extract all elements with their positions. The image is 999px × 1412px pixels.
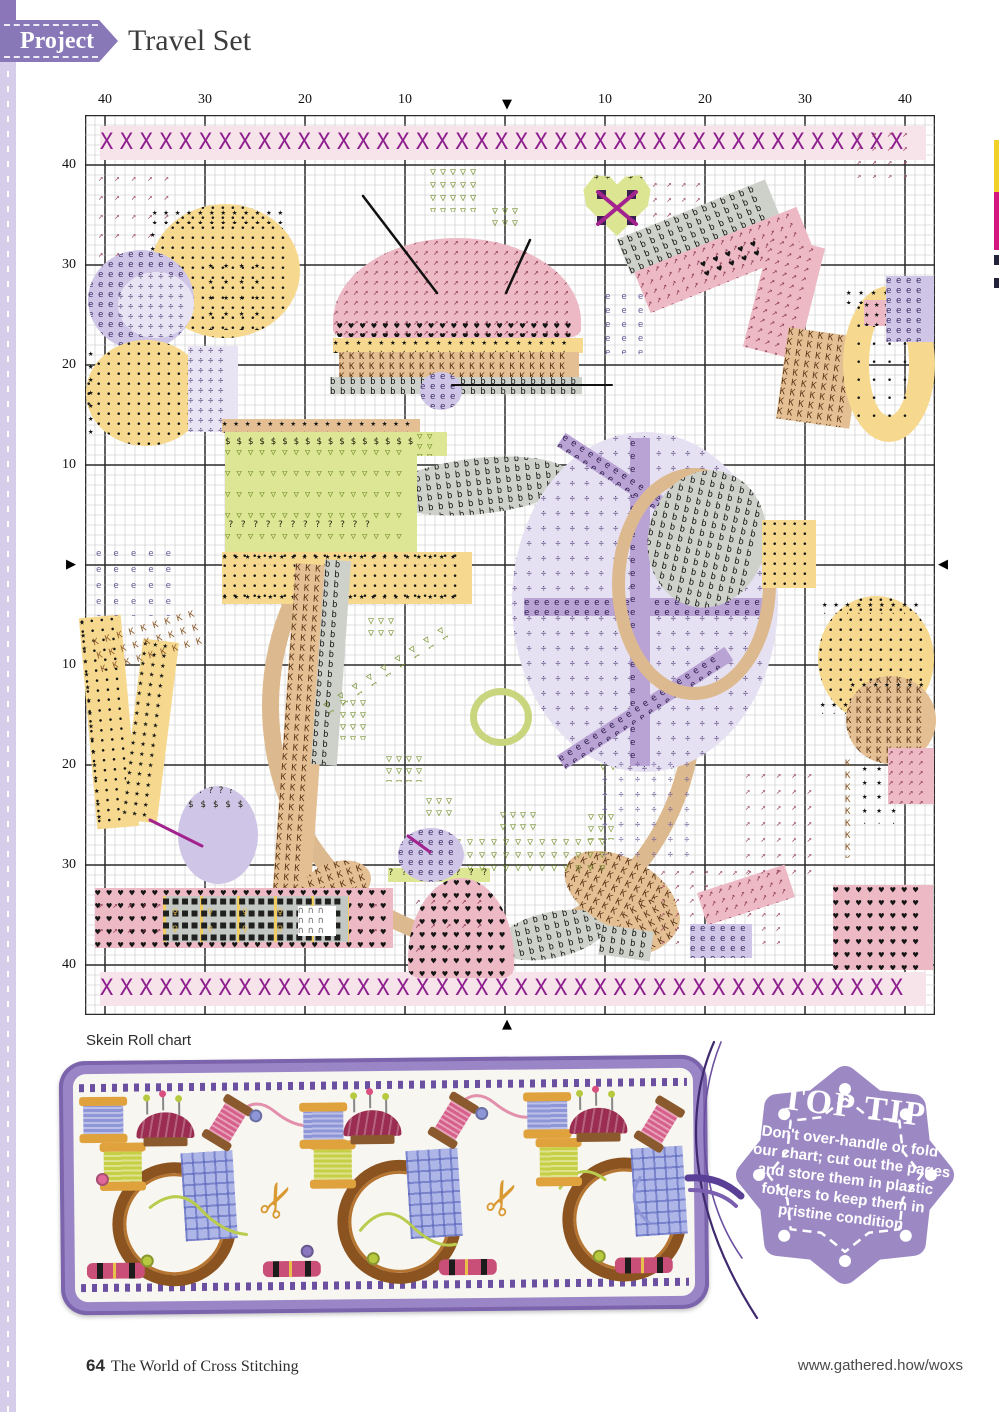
pin-head: [350, 1092, 357, 1099]
aida-fabric: ✂✂: [73, 1068, 695, 1302]
footer-left: 64The World of Cross Stitching: [86, 1356, 299, 1376]
thread-squiggles: [73, 1068, 695, 1302]
stitch-blob: [627, 216, 636, 225]
pincushion-base: [576, 1133, 620, 1142]
stitch-blob: ????????????????????????????????: [228, 520, 378, 532]
left-axis-number: 10: [44, 657, 76, 673]
pin-motif: [353, 1098, 355, 1112]
spool-thread: [104, 1152, 142, 1182]
button-motif: [141, 1254, 154, 1267]
left-axis-number: 40: [44, 157, 76, 173]
top-axis-number: 30: [794, 92, 816, 108]
stitch-blob: ★★★★★★★★★★★★★★★★★★★★★★★★: [88, 348, 104, 440]
pin-motif: [385, 1099, 387, 1113]
left-axis-number: 40: [44, 957, 76, 973]
stitch-blob: eeeeeeeeeeeeeeeeeeeeeeeeeeee: [420, 372, 462, 410]
spool-thread: [303, 1111, 343, 1139]
stitch-blob: ★★★★★★★★★★★★★★★★★★★★★★★★★★★★: [822, 600, 930, 614]
stitch-blob: ∩∩∩∩∩∩∩∩∩∩∩∩∩∩∩∩∩∩∩∩: [298, 906, 336, 936]
stitch-blob: ★★★★★★★★★★★★★★★★★★★★★★★★★★★★★★★★★★★★★★★★…: [222, 419, 420, 433]
stitch-blob: ★★★★★★★★★★★★★★★★★★★★★★★★★★★★★★★★★★★★★★★★…: [333, 338, 583, 353]
stitch-blob: ▽▽▽▽▽▽▽▽▽▽▽▽▽▽▽▽▽: [417, 432, 447, 456]
spool-thread: [540, 1147, 578, 1177]
pin-head: [592, 1086, 599, 1093]
spool-cap: [536, 1138, 582, 1147]
floss-skein-motif: [439, 1259, 497, 1276]
skein-roll-photo: ✂✂: [59, 1055, 710, 1316]
button-motif: [593, 1250, 606, 1263]
stitch-blob: ♥♥♥♥♥♥♥♥♥♥♥♥♥♥♥♥♥♥♥♥♥♥♥♥♥♥♥♥♥♥♥♥♥♥♥♥♥♥♥♥…: [337, 322, 579, 337]
stitch-blob: [597, 216, 606, 225]
floss-skein-motif: [615, 1257, 673, 1274]
stitch-blob: ••••••••••••••••••••••••••••••••••••••••…: [762, 520, 816, 588]
left-axis-number: 20: [44, 357, 76, 373]
stitch-blob: $$$$$$$$$$$$$$$$$$$$$$$$$$$$: [188, 800, 246, 838]
magazine-page: Project Travel Set Skein Roll chart ✂✂ T…: [0, 0, 999, 1412]
spool-cap: [100, 1142, 146, 1151]
center-marker: ▶: [66, 558, 76, 571]
page-number: 64: [86, 1356, 105, 1375]
stitch-blob: XXXXXXXXXXXXXXXXXXXXXXXXXXXXXXXXXXXXXXXX…: [100, 972, 926, 1006]
stitch-blob: KKKKKKKKKKKKKKKKKKKKKKKKKKKKKKKKKKKKKKKK…: [339, 352, 579, 378]
print-registration-mark: [994, 255, 999, 265]
pin-head: [576, 1090, 583, 1097]
pin-head: [608, 1091, 615, 1098]
magazine-name: The World of Cross Stitching: [111, 1358, 299, 1375]
stitch-blob: ▽▽▽▽▽▽▽▽▽▽▽▽▽▽▽▽▽▽▽▽▽▽▽▽▽▽▽▽▽▽▽▽: [430, 166, 484, 212]
stitch-blob: ↗↗↗↗↗↗↗↗↗↗↗↗↗↗↗↗↗↗↗↗↗↗↗↗↗↗↗↗↗↗↗↗↗↗↗↗↗↗: [888, 748, 934, 804]
stitch-blob: eeeeeeeeeeeeeeeeeeeeeeeeeeee: [605, 290, 663, 354]
stitch-blob: [470, 688, 532, 746]
spool-cap: [79, 1097, 127, 1107]
center-marker: ▲: [502, 1018, 512, 1031]
pin-head: [366, 1088, 373, 1095]
project-ribbon: Project: [0, 20, 118, 62]
pin-motif: [162, 1096, 164, 1110]
gold-spool-motif: [310, 1140, 357, 1188]
top-axis-number: 20: [294, 92, 316, 108]
pin-head: [143, 1094, 150, 1101]
gold-spool-motif: [536, 1138, 583, 1186]
top-axis-number: 30: [194, 92, 216, 108]
left-axis-number: 30: [44, 257, 76, 273]
photo-caption: Skein Roll chart: [86, 1032, 191, 1049]
button-motif: [367, 1252, 380, 1265]
spool-thread: [314, 1149, 352, 1179]
stitch-blob: ↗↗↗↗↗↗↗↗↗↗↗↗↗↗↗↗↗↗↗↗↗↗↗↗↗↗↗↗↗↗↗↗: [415, 890, 507, 970]
stitch-blob: ★★★★★★★★★★★★★★★★★★★★★★★★★★★★: [208, 258, 270, 330]
pin-head: [382, 1093, 389, 1100]
stitch-blob: eeeeeeeeeeeeeeeeeeeeeeeeeeeeeeeeeeee: [690, 924, 752, 958]
stitch-blob: ▽▽▽▽▽▽▽▽▽▽▽▽▽▽▽▽▽▽▽▽: [426, 796, 462, 822]
top-axis-number: 10: [394, 92, 416, 108]
floss-skein-motif: [87, 1263, 145, 1280]
spool-thread: [527, 1101, 567, 1129]
floss-skein-motif: [263, 1261, 321, 1278]
spool-cap: [536, 1177, 582, 1186]
pin-motif: [595, 1092, 597, 1106]
ribbon-label: Project: [20, 28, 94, 55]
pincushion-base: [350, 1135, 394, 1144]
stitch-blob: ↗↗↗↗↗↗↗↗↗↗↗↗↗↗↗↗↗↗↗↗↗↗↗↗↗↗↗↗: [856, 128, 928, 178]
print-registration-mark: [994, 278, 999, 288]
pin-motif: [146, 1100, 148, 1114]
print-registration-mark: [994, 192, 999, 250]
stitch-blob: ÷÷÷÷÷÷÷÷÷÷÷÷÷÷÷÷÷÷÷÷÷÷÷÷÷÷÷÷÷÷÷÷÷÷÷÷÷÷÷÷…: [118, 272, 194, 338]
top-axis-number: 40: [94, 92, 116, 108]
button-motif: [475, 1107, 488, 1120]
top-axis-number: 20: [694, 92, 716, 108]
top-axis-number: 40: [894, 92, 916, 108]
top-tip-text-block: TOP TIP Don't over-handle or fold your c…: [734, 1076, 961, 1240]
left-axis-number: 30: [44, 857, 76, 873]
button-motif: [301, 1245, 314, 1258]
spool-thread: [83, 1106, 123, 1134]
stitch-blob: ▽▽▽▽▽▽▽▽▽▽▽▽▽▽▽▽▽▽: [500, 810, 542, 834]
stitch-blob: ▽▽▽▽▽▽▽▽▽▽▽▽▽▽▽▽▽▽▽▽▽▽▽▽▽▽▽▽▽▽▽▽▽▽▽▽▽▽▽▽…: [455, 836, 617, 872]
top-axis-number: 10: [594, 92, 616, 108]
stitch-blob: ★★★★★★★★★★★★★★★★★★★★★★★★★★★★★★★★★★: [152, 208, 298, 224]
spool-cap: [310, 1179, 356, 1188]
footer-website: www.gathered.how/woxs: [798, 1357, 963, 1374]
pin-head: [175, 1095, 182, 1102]
blue-spool-motif: [79, 1097, 127, 1144]
stitch-blob: eeeeeeeeeeeeeeeeeeeeeeeeeeeeeeeeeeeeeeee…: [886, 276, 934, 342]
center-marker: ◀: [938, 558, 948, 571]
stitch-blob: eeeeeeeeeeeeeeeeeeeeeeeeeeeeeeeeeeeeeeee…: [398, 828, 464, 882]
button-motif: [96, 1173, 109, 1186]
spool-cap: [310, 1140, 356, 1149]
button-motif: [249, 1109, 262, 1122]
stitch-blob: eeeeeeeeeeeeeeeeeeeeeeeeeeeeeeeeeeeeee: [96, 546, 186, 616]
pin-motif: [178, 1101, 180, 1115]
pin-motif: [369, 1094, 371, 1108]
stitch-blob: ▽▽▽▽▽▽▽▽▽▽▽▽▽▽▽▽▽▽▽▽: [368, 616, 406, 642]
page-title: Travel Set: [128, 24, 251, 58]
left-axis-number: 20: [44, 757, 76, 773]
pincushion-base: [143, 1137, 187, 1146]
stitch-blob: ★★★★★★★★★★★★★★★★★★★★★★★★: [850, 680, 932, 693]
center-marker: ▼: [502, 98, 512, 111]
left-axis-number: 10: [44, 457, 76, 473]
stitch-blob: ▽▽▽▽▽▽▽▽▽▽▽▽▽▽▽▽▽▽▽▽▽▽▽▽▽▽▽▽▽▽▽▽▽▽▽▽▽▽▽▽…: [225, 443, 417, 555]
blue-spool-motif: [523, 1092, 571, 1139]
stitch-blob: XXXXXXXXXXXXXXXXXXXXXXXXXXXXXXXXXXXXXXXX…: [100, 126, 926, 160]
stitch-blob: ▽▽▽▽▽▽▽▽▽▽▽▽▽▽▽▽▽▽▽▽▽▽▽▽: [340, 698, 372, 740]
stitch-blob: ▽▽▽▽▽▽▽▽▽▽▽▽▽▽▽▽▽▽▽▽▽▽▽: [386, 754, 428, 782]
stitch-blob: ÷÷÷÷÷÷÷÷÷÷÷÷÷÷÷÷÷÷÷÷÷÷÷÷÷÷÷÷÷÷÷÷÷÷÷÷÷÷÷÷…: [602, 758, 714, 858]
pin-motif: [611, 1097, 613, 1111]
pin-head: [159, 1090, 166, 1097]
stitch-blob: ↗↗↗↗↗↗↗↗↗↗↗↗↗↗↗↗↗↗↗↗↗↗↗↗↗↗↗↗↗↗↗↗↗↗↗↗↗↗↗↗…: [745, 768, 835, 880]
print-registration-mark: [994, 140, 999, 192]
stitch-blob: ▽▽▽▽▽▽▽▽▽▽▽▽▽▽▽▽▽▽▽▽: [492, 206, 524, 232]
stitch-blob: [627, 190, 636, 199]
stitch-blob: ♥♥♥♥♥♥♥♥♥♥♥♥♥♥♥♥♥♥♥♥♥♥♥♥♥♥♥♥♥♥♥♥♥♥♥♥♥♥♥♥…: [833, 885, 933, 970]
edge-stitch-marks: [7, 0, 9, 1412]
pin-motif: [579, 1096, 581, 1110]
stitch-blob: [597, 190, 606, 199]
